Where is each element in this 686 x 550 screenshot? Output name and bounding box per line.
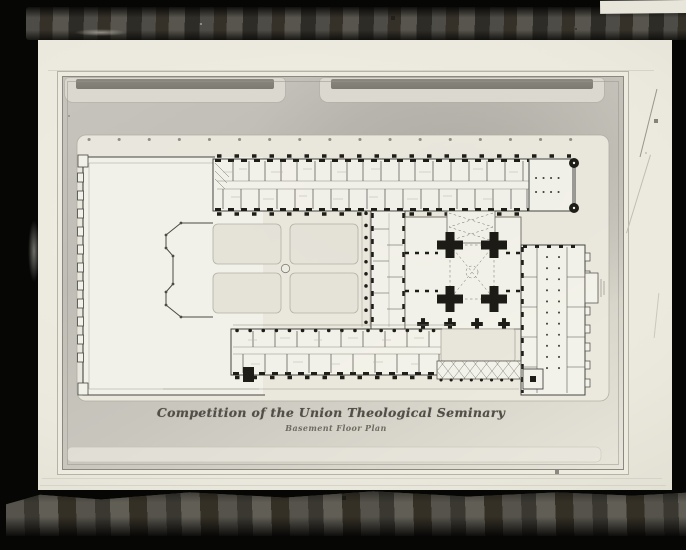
emulsion-scratch [654,293,660,338]
plan-subtitle: Basement Floor Plan [63,424,609,432]
drawing-sheet: Competition of the Union Theological Sem… [62,76,624,470]
plate-top-exposure-band [26,7,686,40]
connector-wing [371,211,405,329]
emulsion-scratch [626,155,651,234]
band-scuff-mark [74,29,128,36]
plate-edge-smudge [28,220,40,282]
photo-paper-margin: Competition of the Union Theological Sem… [38,38,672,490]
margin-rule-bottom-1 [42,478,662,479]
margin-rule-bottom-2 [40,485,666,486]
sidewalk-band [67,447,601,462]
emulsion-scratch [640,89,658,157]
north-wing [213,156,579,214]
east-end-hall [529,158,579,213]
plan-title: Competition of the Union Theological Sem… [63,406,599,420]
margin-rule-top [48,70,654,71]
cloister-walk-vaults [437,361,521,379]
fountain [281,264,289,272]
stair-tower [243,367,254,382]
plate-bottom-exposure-band [6,488,686,536]
dust-specks [0,0,2,2]
chapel-crossing [405,211,521,330]
cloister-court [437,329,521,380]
plate-top-right-sliver [600,0,686,14]
glass-plate-photo: Competition of the Union Theological Sem… [0,0,686,550]
